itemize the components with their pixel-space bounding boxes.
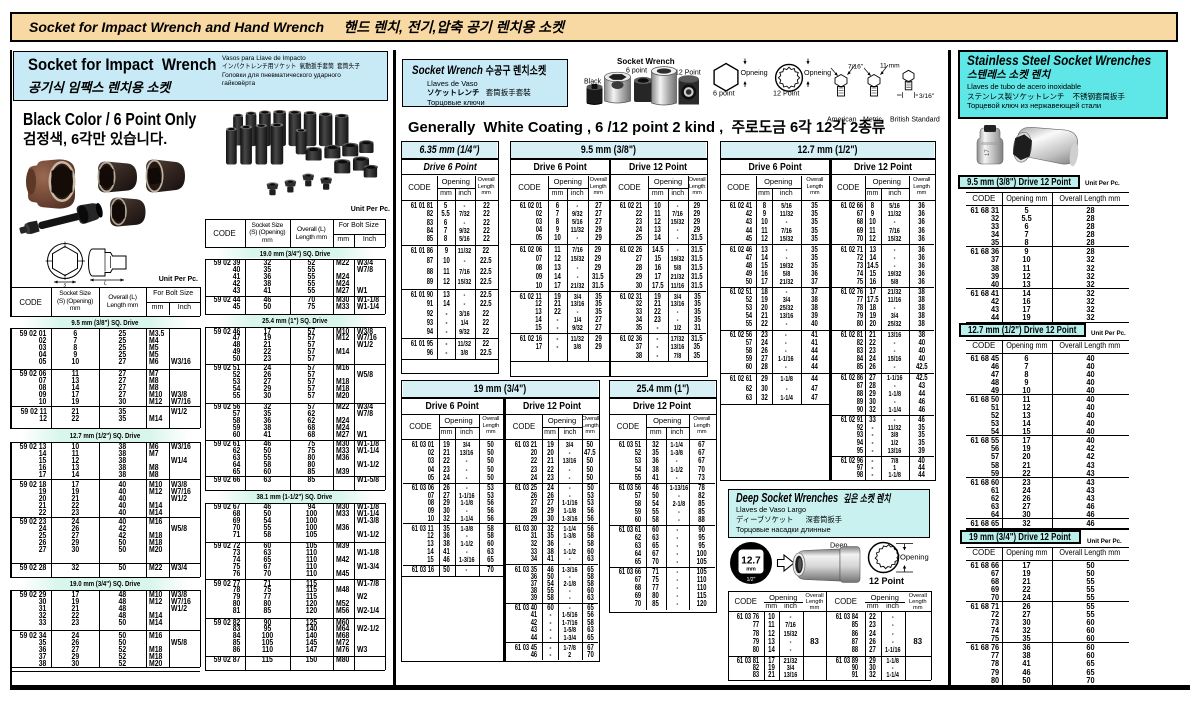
svg-text:1/2": 1/2": [747, 577, 756, 583]
svg-text:6 point: 6 point: [713, 89, 735, 98]
svg-text:Opneing: Opneing: [804, 68, 831, 77]
svg-text:11 mm: 11 mm: [880, 63, 900, 70]
svg-text:6 point: 6 point: [626, 68, 647, 75]
svg-text:7/16": 7/16": [848, 64, 864, 71]
svg-text:17: 17: [985, 149, 991, 156]
svg-text:L: L: [104, 281, 107, 287]
svg-text:mm: mm: [746, 567, 756, 573]
svg-text:3/16": 3/16": [919, 93, 935, 100]
svg-text:12.7: 12.7: [741, 556, 761, 567]
svg-text:Opening: Opening: [900, 553, 929, 562]
svg-text:Socket Wrench: Socket Wrench: [617, 57, 675, 66]
svg-text:Opneing: Opneing: [741, 68, 768, 77]
svg-text:12 Point: 12 Point: [869, 576, 904, 586]
svg-text:12 Point: 12 Point: [773, 89, 799, 98]
